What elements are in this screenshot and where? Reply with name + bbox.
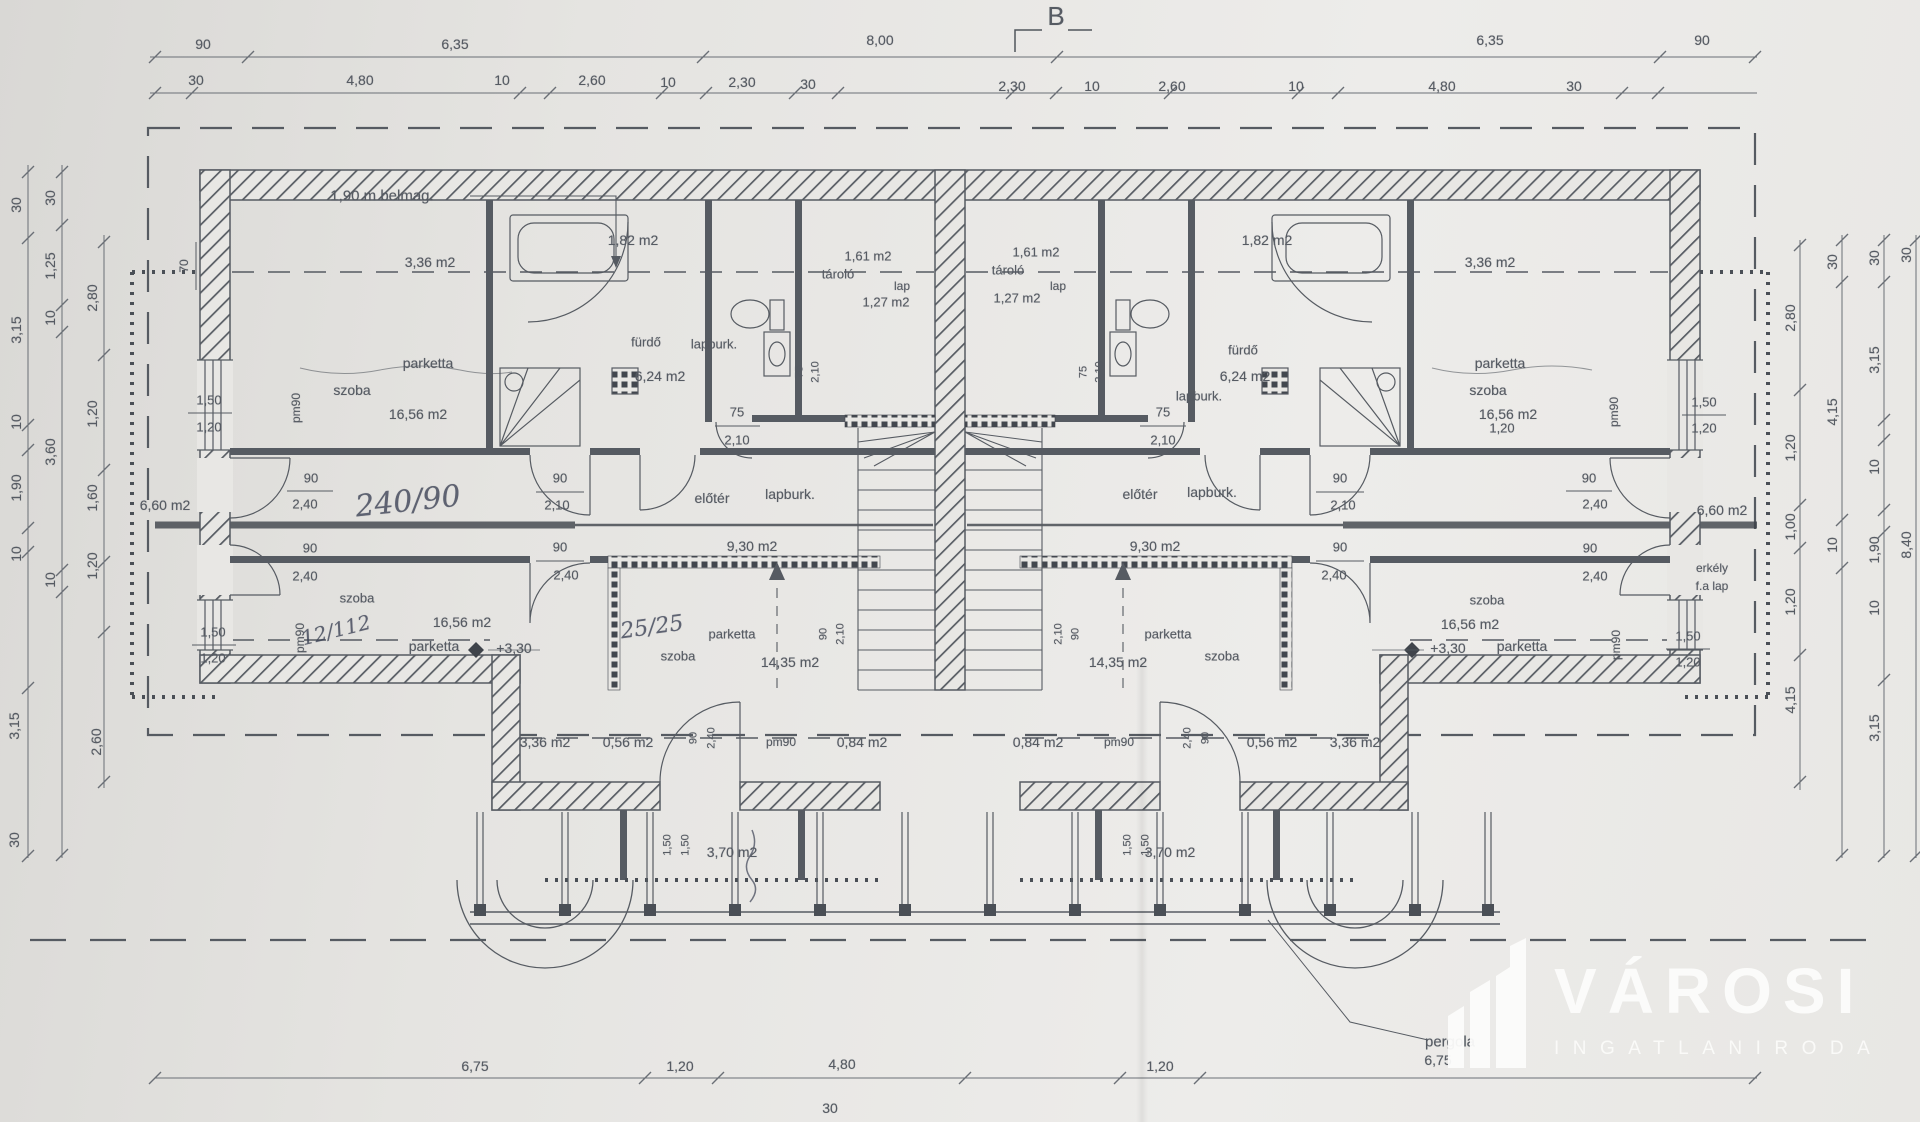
plan-label: 8,00 xyxy=(866,33,893,47)
plan-label: 6,60 m2 xyxy=(1697,503,1748,517)
plan-label: 30 xyxy=(1566,79,1582,93)
plan-label: 1,27 m2 xyxy=(863,296,910,309)
plan-label: parketta xyxy=(409,639,460,653)
plan-label: 1,82 m2 xyxy=(608,233,659,247)
plan-label: 90 xyxy=(304,472,318,485)
brand-logo-icon xyxy=(1448,938,1528,1068)
plan-label: 8,40 xyxy=(1899,531,1913,558)
plan-label: 90 xyxy=(553,472,567,485)
plan-label: 2,10 xyxy=(544,499,569,512)
plan-label: 0,84 m2 xyxy=(1013,735,1064,749)
plan-label: 3,15 xyxy=(9,316,23,343)
plan-label: 1,50 xyxy=(1675,630,1700,643)
plan-label: 9,30 m2 xyxy=(1130,539,1181,553)
plan-label: lap xyxy=(894,280,910,292)
plan-label: 30 xyxy=(822,1101,838,1115)
plan-label: 4,80 xyxy=(1428,79,1455,93)
plan-label: 2,40 xyxy=(1183,727,1194,748)
plan-label: előtér xyxy=(1122,487,1157,501)
plan-label: 3,36 m2 xyxy=(1330,735,1381,749)
plan-label: f.a lap xyxy=(1696,580,1729,592)
plan-label: 30 xyxy=(188,73,204,87)
plan-label: 4,80 xyxy=(346,73,373,87)
plan-label: 2,30 xyxy=(728,75,755,89)
plan-label: 90 xyxy=(1201,732,1212,744)
plan-label: 90 xyxy=(303,542,317,555)
plan-label: 16,56 m2 xyxy=(389,407,447,421)
plan-label: 2,40 xyxy=(1321,569,1346,582)
plan-label: 2,10 xyxy=(724,434,749,447)
plan-label: 6,35 xyxy=(441,37,468,51)
plan-label: 30 xyxy=(800,77,816,91)
plan-label: 1,20 xyxy=(85,552,99,579)
plan-label: 10 xyxy=(9,546,23,562)
plan-label: 90 xyxy=(1694,33,1710,47)
plan-label: 1,82 m2 xyxy=(1242,233,1293,247)
plan-label: 16,56 m2 xyxy=(1479,407,1537,421)
plan-label: lap xyxy=(1050,280,1066,292)
plan-label: 30 xyxy=(9,197,23,213)
plan-label: 1,20 xyxy=(196,421,221,434)
plan-label: 10 xyxy=(1288,79,1304,93)
plan-label: tároló xyxy=(992,264,1025,277)
plan-label: 1,50 xyxy=(663,834,674,855)
plan-label: 1,20 xyxy=(200,652,225,665)
plan-label: 30 xyxy=(1825,254,1839,270)
plan-label: 10 xyxy=(494,73,510,87)
plan-label: előtér xyxy=(694,491,729,505)
plan-label: 6,24 m2 xyxy=(635,369,686,383)
plan-label: 90 xyxy=(1071,628,1082,640)
plan-label: 30 xyxy=(1867,250,1881,266)
plan-label: 10 xyxy=(660,75,676,89)
plan-label: 1,50 xyxy=(200,626,225,639)
plan-label: 75 xyxy=(730,406,744,419)
plan-label: 30 xyxy=(1899,247,1913,263)
plan-label: szoba xyxy=(1470,594,1505,607)
plan-label: 0,56 m2 xyxy=(1247,735,1298,749)
plan-label: 1,90 xyxy=(1867,536,1881,563)
plan-label: 2,10 xyxy=(1095,361,1106,382)
plan-label: pm90 xyxy=(766,736,796,748)
plan-label: szoba xyxy=(1469,383,1506,397)
plan-label: parketta xyxy=(709,628,756,641)
plan-label: pm90 xyxy=(290,393,302,423)
plan-label: 10 xyxy=(9,414,23,430)
plan-label: 90 xyxy=(1582,472,1596,485)
plan-label: 2,40 xyxy=(1582,570,1607,583)
plan-label: 30 xyxy=(7,832,21,848)
plan-label: pm90 xyxy=(1610,630,1622,660)
plan-label: 2,40 xyxy=(292,498,317,511)
plan-label: 1,50 xyxy=(1691,396,1716,409)
plan-label: 10 xyxy=(1867,459,1881,475)
plan-label: 1,50 xyxy=(196,394,221,407)
plan-label: 2,10 xyxy=(1054,623,1065,644)
plan-label: 2,40 xyxy=(292,570,317,583)
plan-label: 3,60 xyxy=(43,438,57,465)
plan-label: 75 xyxy=(1156,406,1170,419)
plan-label: 3,36 m2 xyxy=(1465,255,1516,269)
plan-label: 16,56 m2 xyxy=(433,615,491,629)
plan-label: 1,25 xyxy=(43,252,57,279)
plan-label: 90 xyxy=(1583,542,1597,555)
plan-label: 1,20 xyxy=(1675,656,1700,669)
plan-label: 3,15 xyxy=(1867,346,1881,373)
plan-label: +3,30 xyxy=(1430,641,1465,655)
plan-label: 10 xyxy=(1867,600,1881,616)
watermark: VÁROSI INGATLANIRODA xyxy=(1448,938,1883,1068)
plan-label: 6,35 xyxy=(1476,33,1503,47)
plan-label: 90 xyxy=(1333,472,1347,485)
plan-label: 1,20 xyxy=(1489,422,1514,435)
plan-label: 2,40 xyxy=(707,727,718,748)
plan-label: 1,61 m2 xyxy=(1013,246,1060,259)
plan-label: 2,10 xyxy=(811,361,822,382)
plan-label: 1,50 xyxy=(681,834,692,855)
plan-label: +3,30 xyxy=(496,641,531,655)
plan-label: 1,20 xyxy=(1783,588,1797,615)
plan-label: 10 xyxy=(43,310,57,326)
plan-label: 2,10 xyxy=(1150,434,1175,447)
plan-label: 3,15 xyxy=(1867,714,1881,741)
plan-label: 10 xyxy=(1084,79,1100,93)
plan-label: 70 xyxy=(178,259,190,272)
plan-label: 14,35 m2 xyxy=(761,655,819,669)
plan-label: 2,30 xyxy=(998,79,1025,93)
plan-label: 1,27 m2 xyxy=(994,292,1041,305)
plan-label: fürdő xyxy=(1228,344,1258,357)
plan-label: 6,75 xyxy=(461,1059,488,1073)
plan-label: 6,60 m2 xyxy=(140,498,191,512)
plan-label: 3,36 m2 xyxy=(405,255,456,269)
plan-label: 3,70 m2 xyxy=(1145,845,1196,859)
plan-label: 2,80 xyxy=(1783,304,1797,331)
plan-label: 1,20 xyxy=(1691,422,1716,435)
plan-label: 75 xyxy=(795,366,806,378)
plan-label: 75 xyxy=(1079,366,1090,378)
plan-label: 2,10 xyxy=(1330,499,1355,512)
plan-label: 6,24 m2 xyxy=(1220,369,1271,383)
plan-label: 90 xyxy=(819,628,830,640)
plan-label: 90 xyxy=(553,541,567,554)
plan-label: 90 xyxy=(195,37,211,51)
plan-label: 2,60 xyxy=(1158,79,1185,93)
plan-label: szoba xyxy=(1205,650,1240,663)
pergola xyxy=(457,812,1500,1040)
brand-name: VÁROSI xyxy=(1554,954,1883,1028)
plan-label: 1,00 xyxy=(1783,513,1797,540)
plan-label: 2,10 xyxy=(836,623,847,644)
plan-label: 3,36 m2 xyxy=(520,735,571,749)
plan-label: B xyxy=(1047,3,1064,29)
plan-label: 90 xyxy=(1333,541,1347,554)
plan-label: fürdő xyxy=(631,336,661,349)
plan-label: 9,30 m2 xyxy=(727,539,778,553)
plan-label: parketta xyxy=(1145,628,1192,641)
plan-label: szoba xyxy=(661,650,696,663)
plan-label: 2,60 xyxy=(578,73,605,87)
plan-label: 1,90 m belmag. xyxy=(330,189,433,204)
paper-crease xyxy=(1136,660,1148,1122)
plan-label: 3,70 m2 xyxy=(707,845,758,859)
dimension-lines xyxy=(22,51,1920,1084)
plan-label: 1,20 xyxy=(85,400,99,427)
plan-label: 2,80 xyxy=(85,284,99,311)
plan-label: 1,61 m2 xyxy=(845,250,892,263)
plan-label: 2,40 xyxy=(553,569,578,582)
plan-label: 1,20 xyxy=(1146,1059,1173,1073)
plan-label: 0,84 m2 xyxy=(837,735,888,749)
scanned-floor-plan-page: 906,358,006,3590304,80102,60102,30302,30… xyxy=(0,0,1920,1122)
plan-label: szoba xyxy=(333,383,370,397)
plan-label: parketta xyxy=(1475,356,1526,370)
plan-label: 3,15 xyxy=(7,712,21,739)
plan-label: 1,60 xyxy=(85,484,99,511)
plan-label: lapburk. xyxy=(691,338,737,351)
plan-label: pm90 xyxy=(1104,736,1134,748)
brand-subtitle: INGATLANIRODA xyxy=(1554,1038,1883,1060)
plan-label: 1,20 xyxy=(666,1059,693,1073)
plan-label: 4,15 xyxy=(1783,686,1797,713)
plan-label: pm90 xyxy=(1608,397,1620,427)
plan-label: 4,15 xyxy=(1825,398,1839,425)
plan-label: parketta xyxy=(403,356,454,370)
plan-label: 2,40 xyxy=(1582,498,1607,511)
plan-label: 4,80 xyxy=(828,1057,855,1071)
plan-label: 2,60 xyxy=(89,728,103,755)
plan-label: 10 xyxy=(1825,537,1839,553)
plan-label: 0,56 m2 xyxy=(603,735,654,749)
plan-label: 1,90 xyxy=(9,474,23,501)
plan-label: lapburk. xyxy=(1187,485,1237,499)
plan-label: erkély xyxy=(1696,562,1728,574)
plan-label: 16,56 m2 xyxy=(1441,617,1499,631)
plan-label: tároló xyxy=(822,268,855,281)
plan-label: parketta xyxy=(1497,639,1548,653)
plan-label: 90 xyxy=(689,732,700,744)
plan-label: 10 xyxy=(43,572,57,588)
plan-label: 1,20 xyxy=(1783,434,1797,461)
plan-label: lapburk. xyxy=(765,487,815,501)
plan-label: 1,50 xyxy=(1123,834,1134,855)
plan-label: 30 xyxy=(43,190,57,206)
plan-label: lapburk. xyxy=(1176,390,1222,403)
plan-label: szoba xyxy=(340,592,375,605)
